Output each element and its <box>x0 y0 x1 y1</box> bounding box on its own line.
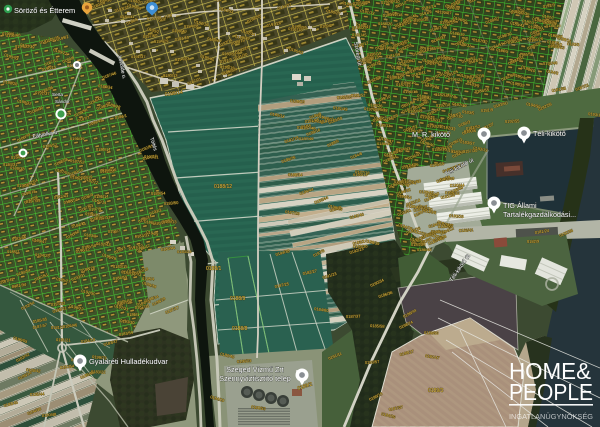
svg-text:0186/14: 0186/14 <box>94 194 109 199</box>
svg-text:0183/50: 0183/50 <box>164 200 180 206</box>
svg-text:0198/14: 0198/14 <box>288 172 303 177</box>
svg-text:Tartalékgazdálkodási...: Tartalékgazdálkodási... <box>503 210 576 219</box>
svg-text:0182/43: 0182/43 <box>96 241 112 247</box>
svg-text:0181/45: 0181/45 <box>352 32 367 38</box>
svg-text:0193/31: 0193/31 <box>144 154 159 160</box>
svg-text:Serta: Serta <box>52 92 63 97</box>
svg-text:0183/41: 0183/41 <box>459 227 474 233</box>
svg-text:0184/20: 0184/20 <box>411 242 426 247</box>
svg-text:0199/10: 0199/10 <box>387 74 403 80</box>
svg-text:0185/23: 0185/23 <box>352 25 367 30</box>
svg-text:0192/55: 0192/55 <box>505 118 520 124</box>
svg-text:TIG Állami: TIG Állami <box>503 201 537 210</box>
svg-text:0180/14: 0180/14 <box>96 147 111 152</box>
svg-text:0182/9: 0182/9 <box>527 239 540 244</box>
svg-text:0189/49: 0189/49 <box>408 108 424 114</box>
svg-text:0193/57: 0193/57 <box>365 359 381 365</box>
svg-text:0196/23: 0196/23 <box>237 358 253 364</box>
svg-text:0185/44: 0185/44 <box>30 391 45 397</box>
svg-text:0191/52: 0191/52 <box>351 92 366 98</box>
svg-text:INGATLANÜGYNÖKSÉG: INGATLANÜGYNÖKSÉG <box>509 412 593 421</box>
svg-text:0184/29: 0184/29 <box>154 38 169 44</box>
svg-text:0197/9: 0197/9 <box>89 206 102 212</box>
svg-text:0192/38: 0192/38 <box>147 15 163 21</box>
svg-text:0192/18: 0192/18 <box>436 102 452 108</box>
svg-text:Szeged Vízmű Zrt: Szeged Vízmű Zrt <box>226 365 284 374</box>
svg-text:0196/18: 0196/18 <box>403 89 418 94</box>
svg-text:0195/4: 0195/4 <box>142 276 155 281</box>
svg-text:0192/6: 0192/6 <box>381 0 394 5</box>
svg-text:0180/13: 0180/13 <box>163 73 178 78</box>
svg-text:0195/39: 0195/39 <box>70 136 85 141</box>
svg-text:0188/9: 0188/9 <box>230 296 246 302</box>
svg-text:0188/12: 0188/12 <box>214 184 232 190</box>
svg-text:0183/15: 0183/15 <box>113 264 128 269</box>
svg-text:0193/24: 0193/24 <box>427 123 443 129</box>
svg-text:0184/16: 0184/16 <box>102 167 118 173</box>
svg-text:Sándor: Sándor <box>55 99 70 104</box>
svg-text:Gyalaréti Hulladékudvar: Gyalaréti Hulladékudvar <box>89 357 168 366</box>
svg-text:PEOPLE: PEOPLE <box>509 379 593 405</box>
svg-text:0189/56: 0189/56 <box>424 330 439 336</box>
svg-text:0185/7: 0185/7 <box>7 249 20 254</box>
svg-text:0188/26: 0188/26 <box>378 21 393 26</box>
svg-text:0188/30: 0188/30 <box>377 141 392 146</box>
svg-text:Szennyvíztisztító telep: Szennyvíztisztító telep <box>219 374 291 383</box>
svg-text:0181/9: 0181/9 <box>481 107 494 113</box>
svg-text:Söröző és Étterem: Söröző és Étterem <box>14 6 75 15</box>
svg-text:0183/42: 0183/42 <box>401 58 417 64</box>
svg-text:0182/14: 0182/14 <box>435 92 450 97</box>
svg-text:0185/58: 0185/58 <box>370 323 385 329</box>
svg-text:0187/37: 0187/37 <box>346 313 361 319</box>
svg-text:0185/10: 0185/10 <box>432 146 447 152</box>
svg-text:0194/7: 0194/7 <box>108 228 121 234</box>
svg-text:Téli-kikötő: Téli-kikötő <box>533 129 566 138</box>
svg-text:0186/1: 0186/1 <box>127 312 140 317</box>
svg-text:0194/23: 0194/23 <box>175 56 191 62</box>
svg-text:0190/15: 0190/15 <box>394 179 409 184</box>
svg-text:0188/1: 0188/1 <box>206 266 222 272</box>
svg-text:0188/46: 0188/46 <box>419 189 435 195</box>
svg-text:M. R. kikötő: M. R. kikötő <box>412 130 450 139</box>
svg-text:0186/45: 0186/45 <box>417 247 432 252</box>
svg-text:0183/23: 0183/23 <box>177 249 192 254</box>
svg-text:0191/21: 0191/21 <box>56 337 71 343</box>
svg-text:0187/33: 0187/33 <box>396 82 411 88</box>
svg-text:0181/1: 0181/1 <box>51 325 64 330</box>
svg-text:0192/48: 0192/48 <box>543 60 558 66</box>
svg-text:0189/3: 0189/3 <box>428 388 444 394</box>
svg-text:0189/54: 0189/54 <box>151 190 166 196</box>
svg-text:0194/32: 0194/32 <box>15 43 30 49</box>
svg-text:0188/8: 0188/8 <box>232 326 248 332</box>
svg-text:0180/28: 0180/28 <box>449 213 465 219</box>
svg-text:0192/22: 0192/22 <box>337 94 352 100</box>
svg-text:0191/37: 0191/37 <box>131 54 146 59</box>
svg-text:0199/6: 0199/6 <box>2 31 15 36</box>
